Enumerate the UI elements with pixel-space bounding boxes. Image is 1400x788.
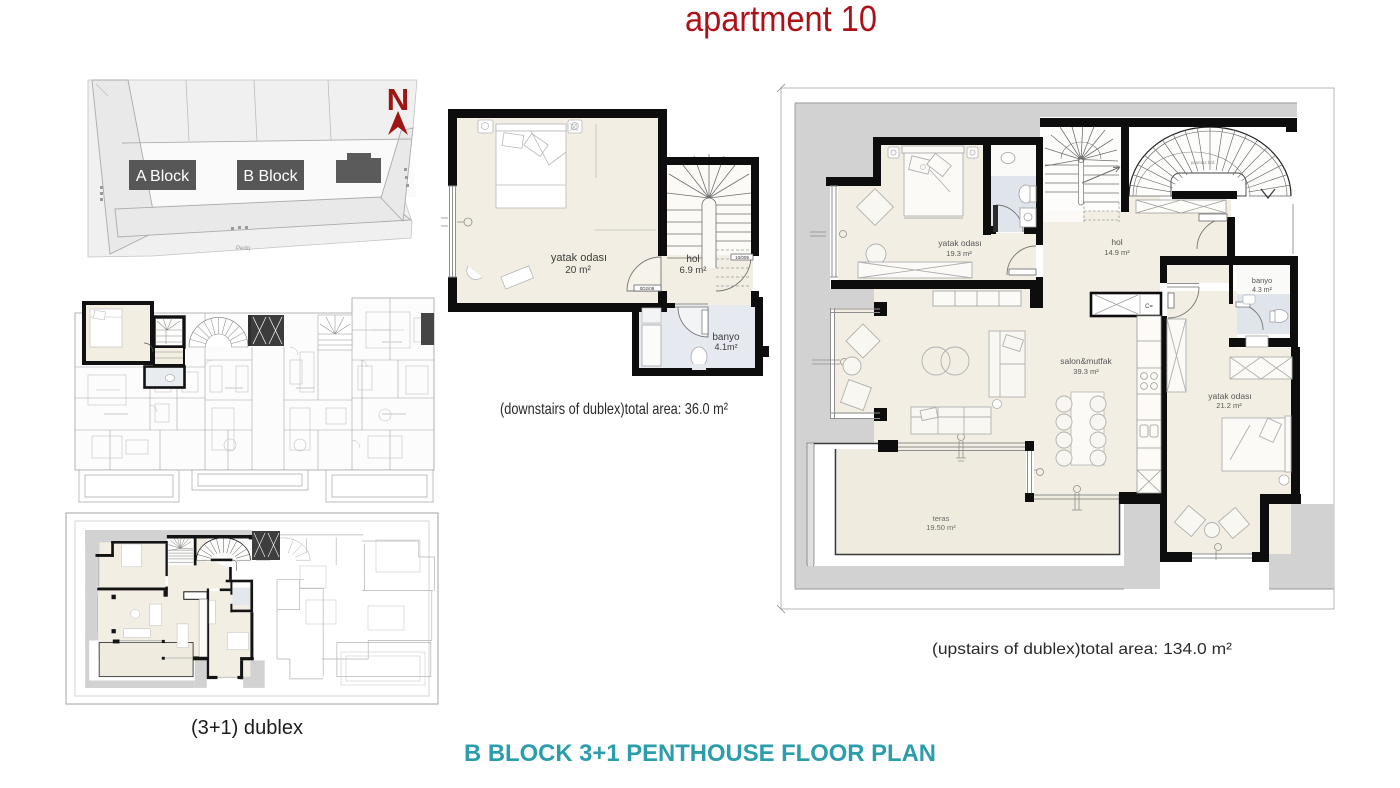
svg-text:B BLOCK 3+1 PENTHOUSE FLOOR PL: B BLOCK 3+1 PENTHOUSE FLOOR PLAN [464,740,936,767]
svg-text:(downstairs of dublex)total ar: (downstairs of dublex)total area: 36.0 m… [500,401,729,418]
svg-text:banyo: banyo [1252,276,1272,285]
svg-text:19.3 m²: 19.3 m² [946,249,972,258]
svg-text:yatak odası: yatak odası [1208,391,1251,401]
svg-text:C=: C= [1145,304,1153,310]
svg-text:A Block: A Block [136,168,190,185]
svg-text:yatak odası: yatak odası [551,252,607,264]
svg-text:19.50 m²: 19.50 m² [926,523,956,532]
svg-text:0D2/08: 0D2/08 [640,286,655,291]
svg-text:Pedq: Pedq [236,246,250,252]
svg-text:14.9 m²: 14.9 m² [1104,248,1130,257]
svg-text:4.1m²: 4.1m² [714,342,737,352]
svg-text:10/009: 10/009 [735,255,749,260]
svg-text:21.2 m²: 21.2 m² [1216,401,1242,410]
svg-text:20 m²: 20 m² [565,265,591,276]
svg-text:6.9 m²: 6.9 m² [680,265,707,276]
svg-text:39.3 m²: 39.3 m² [1073,367,1099,376]
svg-text:teras: teras [933,514,950,523]
svg-text:hol: hol [1111,237,1122,247]
svg-text:B Block: B Block [243,168,298,185]
svg-text:hol: hol [686,254,699,265]
svg-text:yatak odası: yatak odası [938,238,981,248]
svg-text:yanmaz böl.: yanmaz böl. [1191,160,1215,165]
svg-text:(3+1) dublex: (3+1) dublex [191,717,303,739]
svg-text:salon&mutfak: salon&mutfak [1060,356,1112,366]
svg-text:4.3 m²: 4.3 m² [1252,287,1273,294]
svg-text:(upstairs of dublex)total area: (upstairs of dublex)total area: 134.0 m² [932,641,1233,658]
svg-text:apartment 10: apartment 10 [685,0,877,39]
